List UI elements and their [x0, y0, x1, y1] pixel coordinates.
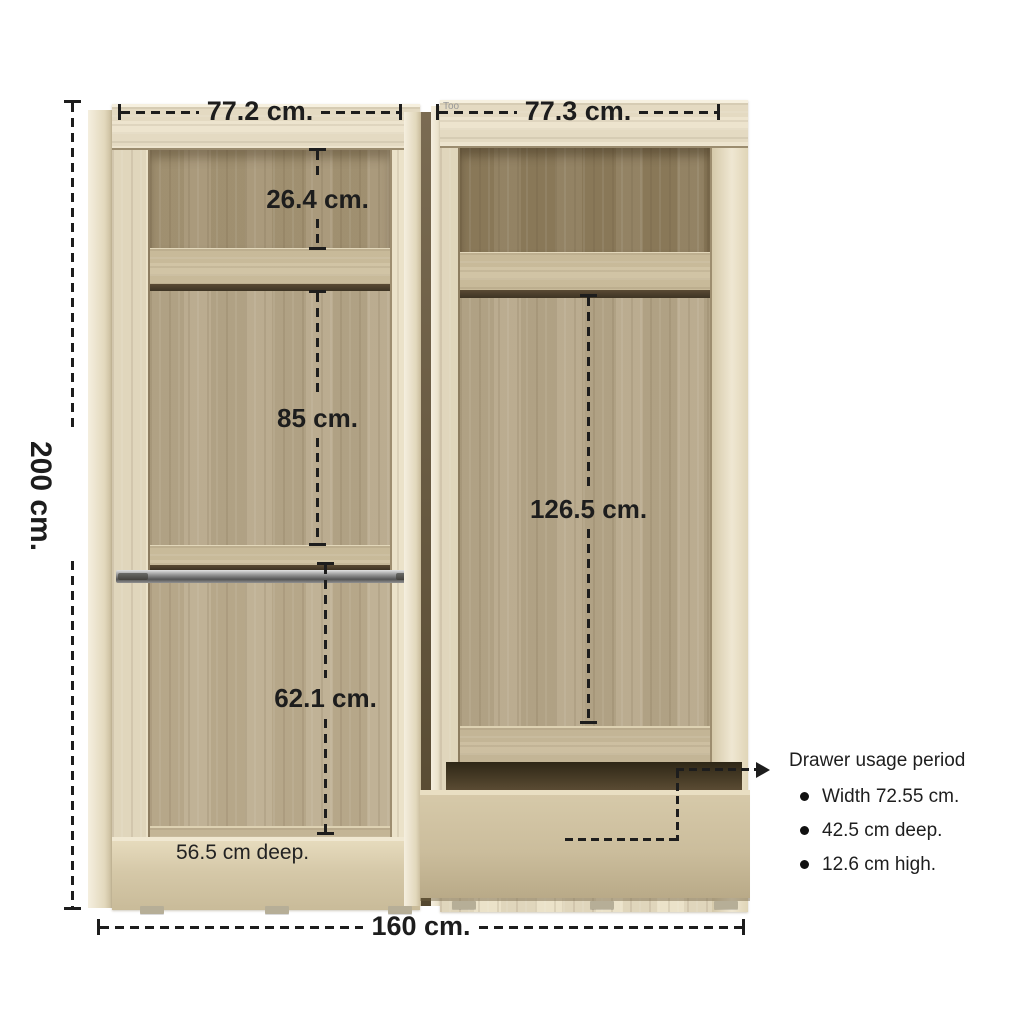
dimension-dash: [316, 293, 319, 398]
foot: [590, 901, 614, 909]
dimension-label: 77.3 cm.: [517, 98, 640, 125]
depth-note: 56.5 cm deep.: [176, 841, 309, 865]
dimension-right-unit-width: 77.3 cm.: [436, 95, 720, 129]
center-door-edge-left: [404, 112, 421, 906]
dimension-label: 26.4 cm.: [266, 179, 369, 220]
dimension-label: 160 cm.: [363, 913, 478, 940]
dimension-tick: [309, 543, 326, 546]
dimension-dash: [71, 103, 74, 431]
left-unit-interior: [148, 150, 392, 841]
dimension-dash: [316, 438, 319, 543]
dimension-overall-width: 160 cm.: [97, 910, 745, 944]
foot: [452, 901, 476, 909]
dimension-dash: [479, 926, 742, 929]
left-unit-open-door-edge: [88, 110, 112, 908]
right-unit-top-compartment: [460, 148, 710, 252]
drawer-callout-text: 12.6 cm high.: [822, 855, 936, 874]
rail-bracket: [118, 573, 148, 580]
dimension-overall-height: 200 cm.: [64, 100, 81, 910]
dimension-label: 200 cm.: [25, 441, 55, 551]
dimension-tick: [309, 247, 326, 250]
dimension-left-bottom-section: 62.1 cm.: [317, 562, 334, 835]
dimension-label: 62.1 cm.: [274, 678, 377, 719]
dimension-tick: [580, 721, 597, 724]
left-unit-lower-shelf: [150, 545, 390, 565]
dimension-tick: [742, 919, 745, 935]
drawer-callout-title: Drawer usage period: [789, 750, 965, 772]
dimension-dash: [587, 297, 590, 489]
left-wardrobe-unit: [112, 104, 420, 910]
dimension-dash: [100, 926, 363, 929]
dimension-left-unit-width: 77.2 cm.: [118, 95, 402, 129]
bullet-icon: [800, 826, 809, 835]
unit-gap-shadow: [421, 112, 431, 906]
dimension-tick: [64, 907, 81, 910]
dimension-label: 77.2 cm.: [199, 98, 322, 125]
bullet-icon: [800, 860, 809, 869]
dimension-label-area: 200 cm.: [64, 431, 81, 561]
dimension-dash: [71, 561, 74, 907]
dimension-tick: [317, 832, 334, 835]
shelf-shadow: [150, 284, 390, 291]
dimension-dash: [439, 111, 517, 114]
dimension-label: 126.5 cm.: [530, 489, 647, 530]
callout-line: [676, 770, 679, 841]
wardrobe-dimension-diagram: Too 200 cm. 77.2 cm. 77.3 cm. 26.4 cm.: [0, 0, 1024, 1024]
dimension-dash: [324, 719, 327, 832]
drawer-opening-shadow: [446, 762, 742, 790]
dimension-tick: [717, 104, 720, 120]
drawer-front: [420, 790, 750, 898]
dimension-tick: [399, 104, 402, 120]
callout-line: [676, 768, 758, 771]
foot: [714, 901, 738, 909]
dimension-dash: [321, 111, 399, 114]
dimension-dash: [324, 565, 327, 678]
dimension-dash: [121, 111, 199, 114]
dimension-left-middle-section: 85 cm.: [309, 290, 326, 546]
dimension-dash: [316, 151, 319, 179]
left-unit-upper-shelf: [150, 248, 390, 284]
drawer-callout-item: 42.5 cm deep.: [800, 821, 942, 840]
callout-line: [565, 838, 679, 841]
drawer-callout-text: 42.5 cm deep.: [822, 821, 942, 840]
dimension-left-top-section: 26.4 cm.: [309, 148, 326, 250]
drawer-callout-item: Width 72.55 cm.: [800, 787, 959, 806]
right-unit-shelf: [460, 252, 710, 290]
callout-arrow-icon: [756, 762, 770, 778]
right-unit-floor: [460, 726, 710, 762]
drawer-callout-text: Width 72.55 cm.: [822, 787, 959, 806]
bullet-icon: [800, 792, 809, 801]
dimension-right-section: 126.5 cm.: [580, 294, 597, 724]
hanging-rail: [116, 570, 416, 583]
dimension-dash: [316, 219, 319, 247]
dimension-dash: [587, 529, 590, 721]
dimension-label: 85 cm.: [277, 398, 358, 439]
dimension-dash: [639, 111, 717, 114]
drawer-callout-item: 12.6 cm high.: [800, 855, 936, 874]
